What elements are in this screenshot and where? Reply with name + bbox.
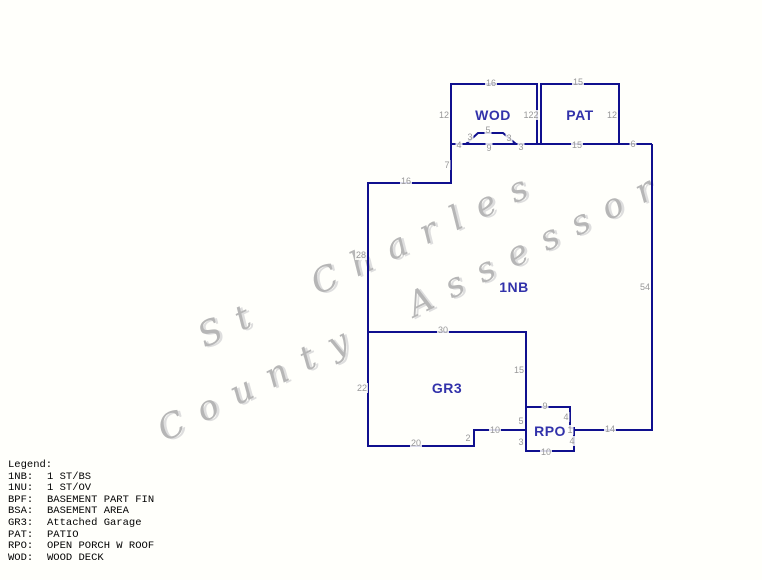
dimension-label: 15: [572, 77, 584, 87]
legend-title: Legend:: [8, 460, 154, 472]
dimension-label: 22: [356, 383, 368, 393]
dimension-label: 14: [604, 424, 616, 434]
dimension-label: 2: [464, 433, 471, 443]
legend-code: GR3:: [8, 518, 47, 530]
dimension-label: 3: [466, 132, 473, 142]
dimension-label: 6: [629, 139, 636, 149]
dimension-label: 12: [606, 110, 618, 120]
legend-row: RPO:OPEN PORCH W ROOF: [8, 541, 154, 553]
dimension-label: 30: [437, 325, 449, 335]
dimension-label: 16: [400, 176, 412, 186]
dimension-label: 20: [410, 438, 422, 448]
dimension-label: 7: [443, 160, 450, 170]
dimension-label: 9: [485, 143, 492, 153]
dimension-label: 3: [505, 133, 512, 143]
legend-desc: Attached Garage: [47, 518, 142, 530]
dimension-label: 4: [455, 140, 462, 150]
legend-desc: OPEN PORCH W ROOF: [47, 541, 154, 553]
dimension-label: 16: [485, 78, 497, 88]
assessor-sketch-image: St Charles County Assessor 1612122151243…: [0, 0, 762, 580]
dimension-label: 4: [562, 412, 569, 422]
legend: Legend: 1NB:1 ST/BS1NU:1 ST/OVBPF:BASEME…: [8, 460, 154, 564]
area-label-wod: WOD: [475, 107, 511, 123]
dimension-label: 10: [540, 447, 552, 457]
dimension-label: 9: [541, 401, 548, 411]
area-label-pat: PAT: [566, 107, 593, 123]
dimension-label: 15: [513, 365, 525, 375]
dimension-label: 10: [489, 425, 501, 435]
dimension-label: 54: [639, 282, 651, 292]
dimension-label: 3: [517, 437, 524, 447]
dimension-label: 4: [568, 436, 575, 446]
dimension-label: 1: [566, 425, 573, 435]
dimension-label: 15: [571, 140, 583, 150]
dimension-label: 122: [522, 110, 539, 120]
area-label-gr3: GR3: [432, 380, 462, 396]
legend-code: RPO:: [8, 541, 47, 553]
legend-row: GR3:Attached Garage: [8, 518, 154, 530]
dimension-label: 5: [484, 125, 491, 135]
legend-rows: 1NB:1 ST/BS1NU:1 ST/OVBPF:BASEMENT PART …: [8, 472, 154, 565]
dimension-label: 5: [517, 416, 524, 426]
area-label-rpo: RPO: [534, 423, 566, 439]
legend-desc: WOOD DECK: [47, 553, 104, 565]
legend-code: WOD:: [8, 553, 47, 565]
legend-row: WOD:WOOD DECK: [8, 553, 154, 565]
dimension-label: 3: [517, 142, 524, 152]
dimension-label: 28: [355, 250, 367, 260]
dimension-label: 12: [438, 110, 450, 120]
area-label-1nb: 1NB: [499, 279, 529, 295]
